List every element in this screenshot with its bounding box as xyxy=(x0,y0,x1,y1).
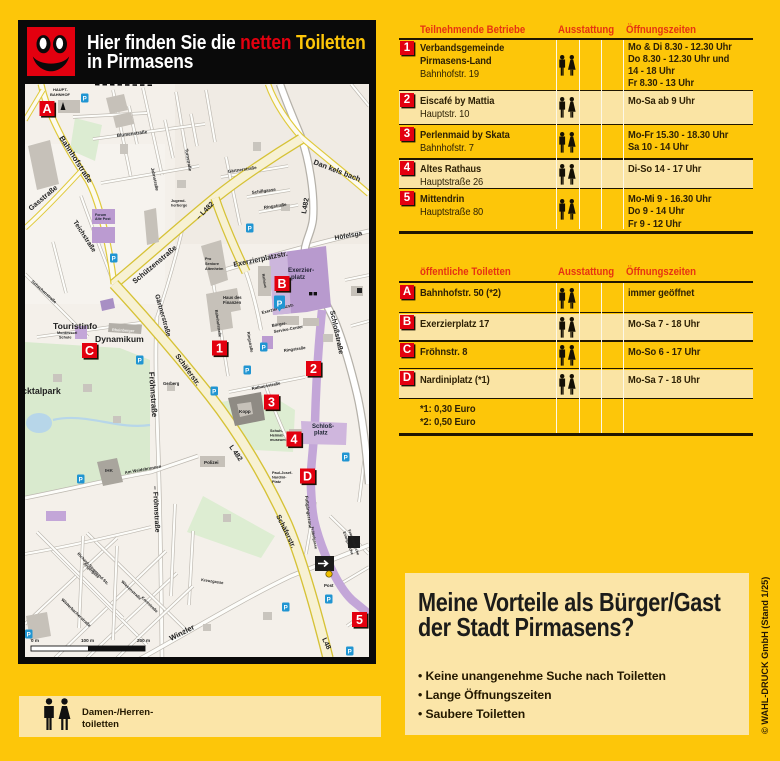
svg-text:P: P xyxy=(327,596,331,603)
svg-text:Exerzier-: Exerzier- xyxy=(288,267,314,274)
svg-text:P: P xyxy=(248,225,252,232)
svg-text:Polizei: Polizei xyxy=(204,460,219,465)
svg-text:Paul-Josef-: Paul-Josef- xyxy=(272,471,293,475)
svg-text:4: 4 xyxy=(291,433,298,447)
svg-text:Jugend-: Jugend- xyxy=(171,199,187,203)
svg-text:P: P xyxy=(262,344,266,351)
svg-text:Schule: Schule xyxy=(59,336,71,340)
svg-text:Montessori: Montessori xyxy=(57,331,77,335)
svg-text:Platz: Platz xyxy=(272,480,281,484)
svg-text:platz: platz xyxy=(314,431,328,437)
svg-text:Seniore: Seniore xyxy=(205,262,219,266)
svg-text:Schuh-: Schuh- xyxy=(270,429,284,433)
svg-text:P: P xyxy=(344,454,348,461)
svg-text:200 m: 200 m xyxy=(137,638,150,643)
svg-text:2: 2 xyxy=(310,362,317,376)
svg-text:0 m: 0 m xyxy=(31,638,39,643)
svg-text:Heimat-: Heimat- xyxy=(270,434,285,438)
svg-text:D: D xyxy=(303,470,312,484)
svg-text:5: 5 xyxy=(356,613,363,627)
svg-text:Altenheim: Altenheim xyxy=(205,267,224,271)
svg-text:Pro: Pro xyxy=(205,257,212,261)
svg-text:3: 3 xyxy=(268,396,275,410)
svg-text:A: A xyxy=(42,102,51,116)
svg-text:museum: museum xyxy=(270,438,286,442)
svg-text:B: B xyxy=(277,277,286,291)
svg-text:Finanzen: Finanzen xyxy=(223,300,242,305)
svg-text:Kopp: Kopp xyxy=(239,409,251,414)
svg-text:P: P xyxy=(112,255,116,262)
svg-text:P: P xyxy=(79,476,83,483)
svg-text:P: P xyxy=(138,357,142,364)
svg-text:P: P xyxy=(348,648,352,655)
svg-text:Post: Post xyxy=(324,583,334,588)
svg-text:C: C xyxy=(85,344,94,358)
svg-text:Schloß-: Schloß- xyxy=(312,424,334,430)
svg-text:Strecktalpark: Strecktalpark xyxy=(25,386,61,396)
svg-text:Gerberg: Gerberg xyxy=(163,381,180,386)
svg-text:P: P xyxy=(245,367,249,374)
svg-text:1: 1 xyxy=(216,342,223,356)
svg-text:Nardini-: Nardini- xyxy=(272,476,287,480)
svg-text:100 m: 100 m xyxy=(81,638,94,643)
svg-text:P: P xyxy=(277,298,283,308)
svg-text:P: P xyxy=(212,388,216,395)
svg-text:P: P xyxy=(27,631,31,638)
svg-text:IHK: IHK xyxy=(105,468,114,473)
svg-text:platz: platz xyxy=(291,274,305,281)
svg-text:BAHNHOF: BAHNHOF xyxy=(50,92,71,97)
svg-text:Dynamikum: Dynamikum xyxy=(95,334,144,344)
svg-text:herberge: herberge xyxy=(171,204,187,208)
svg-text:P: P xyxy=(83,95,87,102)
svg-text:Touristinfo: Touristinfo xyxy=(53,321,97,331)
svg-text:P: P xyxy=(284,604,288,611)
svg-text:Alte Post: Alte Post xyxy=(95,217,111,221)
